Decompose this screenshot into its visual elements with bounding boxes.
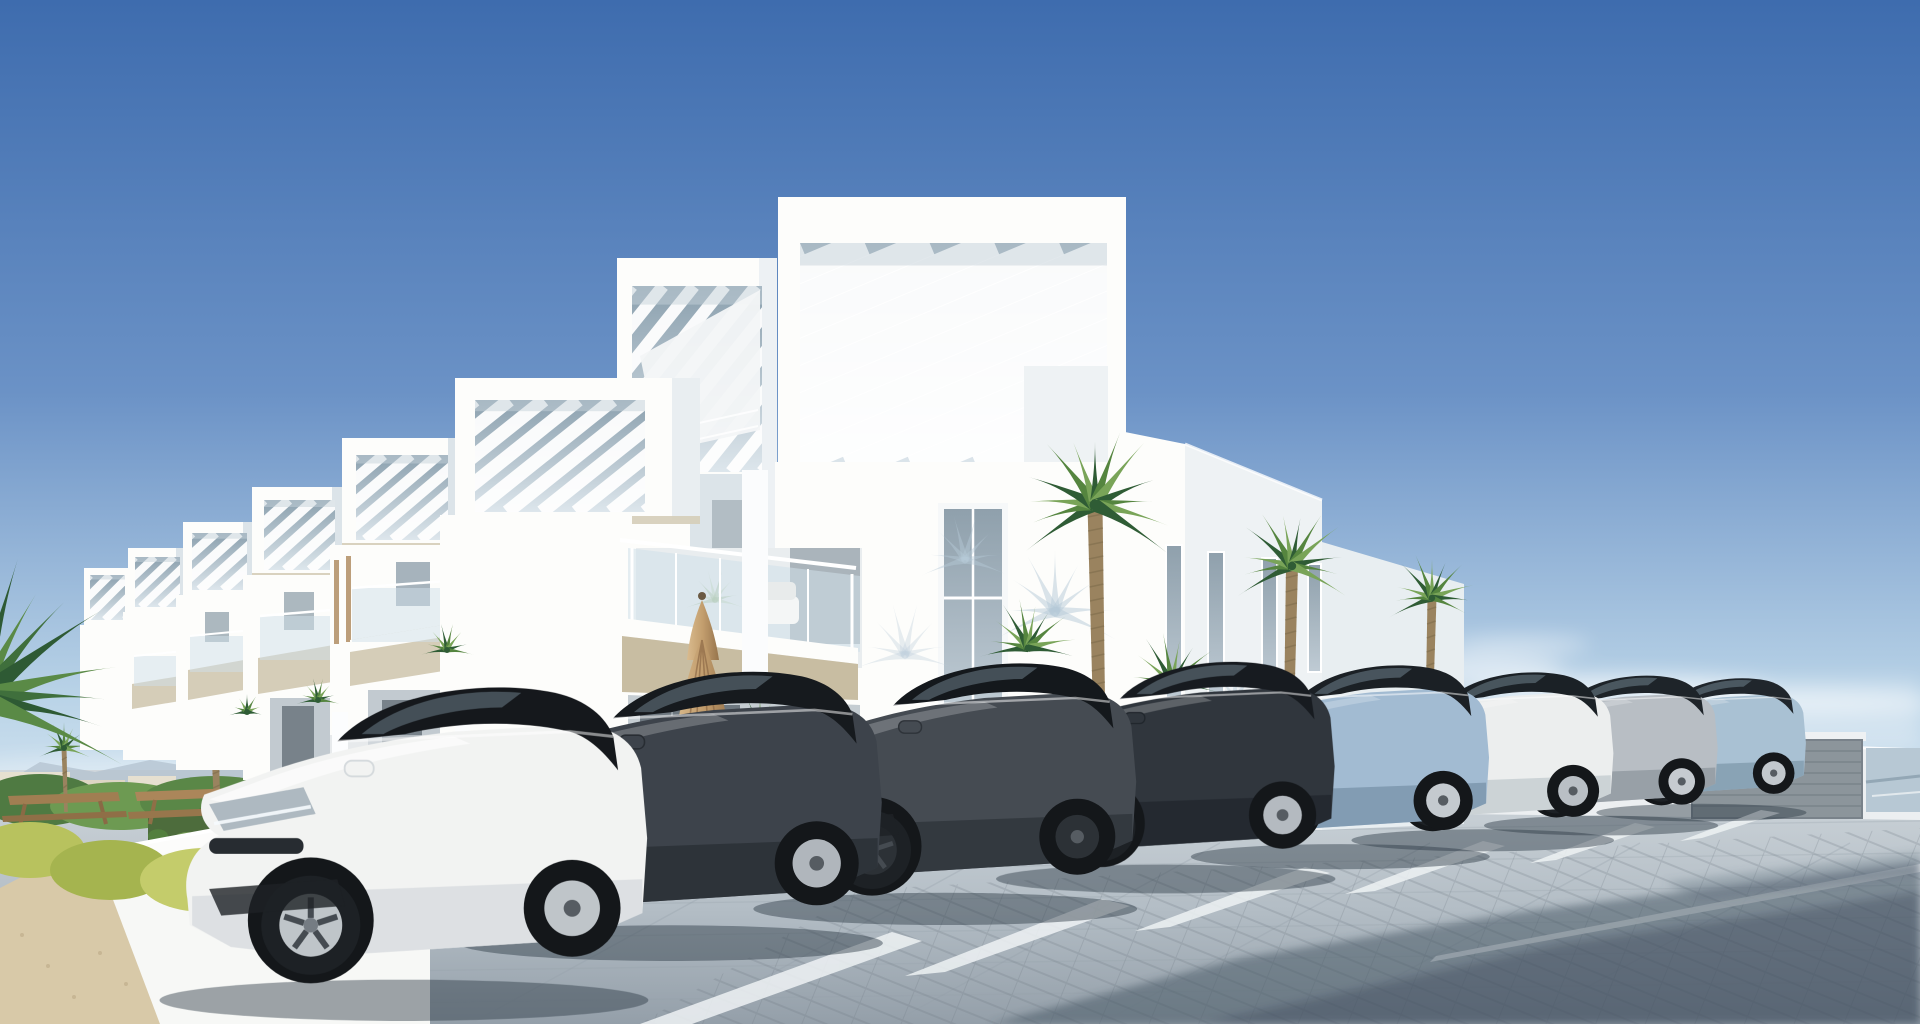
sea-horizon bbox=[1866, 748, 1920, 812]
architectural-render bbox=[0, 0, 1920, 1024]
